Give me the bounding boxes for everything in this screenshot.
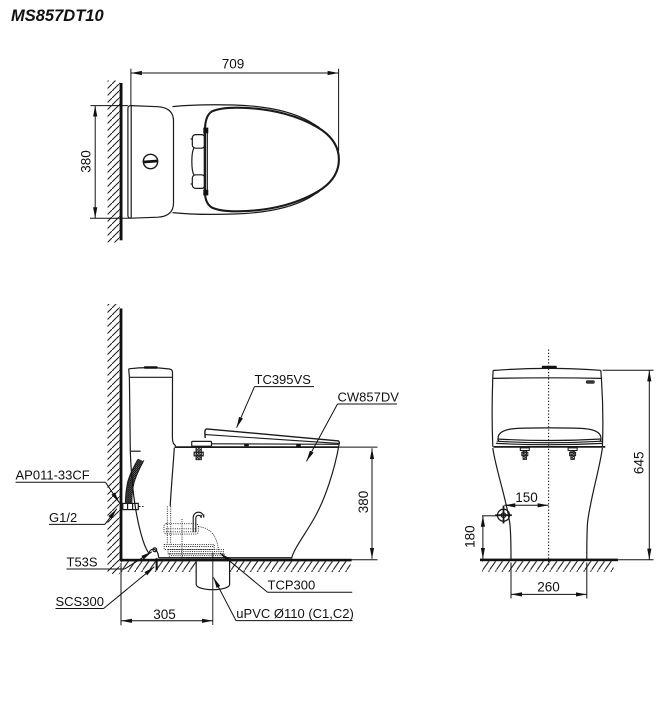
svg-text:150: 150 xyxy=(515,490,538,505)
svg-text:TCP300: TCP300 xyxy=(268,578,316,593)
svg-text:TC395VS: TC395VS xyxy=(255,372,312,387)
svg-text:MS857DT10: MS857DT10 xyxy=(11,7,104,25)
svg-text:uPVC Ø110 (C1,C2): uPVC Ø110 (C1,C2) xyxy=(236,606,354,621)
svg-text:380: 380 xyxy=(79,150,94,173)
svg-text:AP011-33CF: AP011-33CF xyxy=(16,468,90,483)
svg-text:305: 305 xyxy=(153,607,176,622)
svg-text:180: 180 xyxy=(462,525,477,548)
svg-text:G1/2: G1/2 xyxy=(49,510,77,525)
svg-text:709: 709 xyxy=(222,57,245,72)
svg-text:CW857DV: CW857DV xyxy=(338,390,400,405)
svg-text:645: 645 xyxy=(632,452,647,475)
svg-text:T53S: T53S xyxy=(67,555,98,570)
svg-text:380: 380 xyxy=(356,491,371,514)
svg-text:260: 260 xyxy=(537,580,560,595)
svg-text:SCS300: SCS300 xyxy=(56,594,104,609)
